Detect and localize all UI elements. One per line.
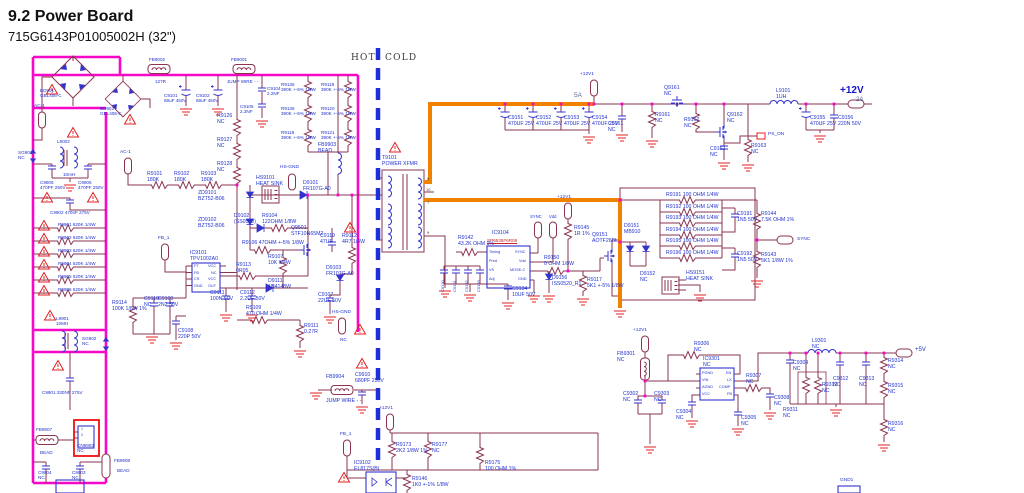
fb9001-bead-symbol <box>233 65 255 74</box>
zd9102-zener <box>247 219 254 225</box>
fb9904-bead-symbol <box>331 386 353 395</box>
cn9903-connector <box>78 426 94 448</box>
fb9908-bead-symbol <box>102 454 110 478</box>
fb9002-bead-symbol <box>148 65 170 74</box>
d9102-diode <box>257 224 264 232</box>
orange-trace <box>424 104 620 308</box>
q9151-mosfet <box>604 248 615 264</box>
page-title: 9.2 Power Board <box>8 8 133 26</box>
hs9101-heatsink <box>262 186 279 203</box>
q9501-mosfet <box>300 242 311 258</box>
d9156-diode <box>546 274 553 280</box>
ic9104-box <box>487 246 530 288</box>
resistors <box>56 80 888 492</box>
resistor-bank-box <box>620 188 755 300</box>
bd901-bridge <box>52 56 94 98</box>
schematic-canvas <box>0 0 1024 493</box>
d9111-diode <box>266 284 273 292</box>
fb9903-coil <box>338 153 342 174</box>
ground-symbols <box>64 109 890 453</box>
fb9907-bead-symbol <box>36 436 58 445</box>
power-board-schematic: HOTCOLD+12V2A5A+12V1+12V1+12V1+12V1+5VPS… <box>0 0 1024 493</box>
q9161-mosfet <box>669 96 685 107</box>
l9002-coil <box>60 147 64 168</box>
gnd1-connector <box>838 486 860 493</box>
ic9301-box <box>700 368 734 400</box>
d9152-diode <box>643 246 650 252</box>
hs9151-heatsink <box>662 277 679 294</box>
board-part-number: 715G6143P01005002H (32") <box>8 29 176 44</box>
l9301-coil <box>808 350 836 354</box>
d9101-diode <box>300 191 307 199</box>
connectors <box>39 80 913 456</box>
d9151-diode <box>627 246 634 252</box>
q9162-mosfet <box>716 124 727 140</box>
d9103-diode <box>337 275 344 281</box>
ic9102-optocoupler <box>366 472 396 493</box>
circuit-wires <box>33 57 896 493</box>
l9101-coil <box>770 101 798 105</box>
bd902-bridge <box>105 81 141 117</box>
ic9101-box <box>192 263 220 292</box>
ps-on-pad <box>757 133 765 139</box>
